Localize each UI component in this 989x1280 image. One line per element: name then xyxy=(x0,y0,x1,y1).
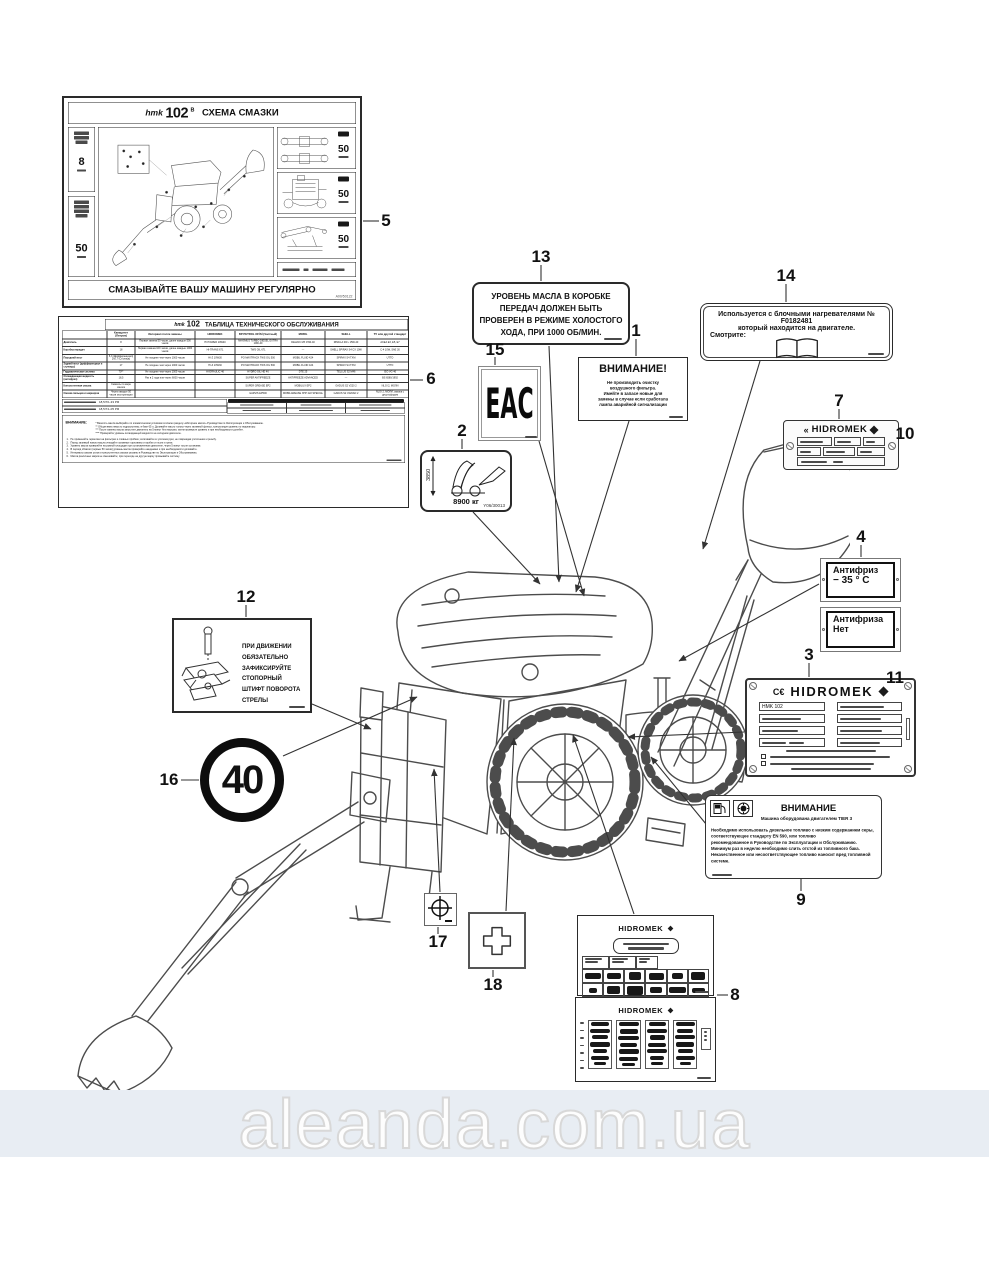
table-row: Двигатель 8 Первая замена 50 часов, дале… xyxy=(62,339,405,347)
model-number: 102 xyxy=(165,105,188,122)
maintenance-table-label: hmk 102 ТАБЛИЦА ТЕХНИЧЕСКОГО ОБСЛУЖИВАНИ… xyxy=(58,316,409,508)
model-suffix: B xyxy=(191,107,195,113)
boom-lube-panel: 50 xyxy=(277,217,356,259)
standard: NLGI 2, МОЛИ, смазка с дисульфидом xyxy=(367,390,409,398)
brand-name: HIDROMEK xyxy=(618,1006,663,1015)
manual-book-icon xyxy=(771,337,823,361)
speed-limit-sign: 40 xyxy=(200,738,284,822)
column-header: Интервал после замены xyxy=(135,331,195,339)
label-code: Y06/30013 xyxy=(483,503,505,508)
legend-strip xyxy=(277,262,356,277)
speed-value: 40 xyxy=(222,758,263,803)
engine-chart-top: HIDROMEK xyxy=(577,915,714,996)
petrol-oil: TWS OIL 671 xyxy=(235,347,281,355)
antifreeze-plate: Антифриз − 35 ° C xyxy=(820,558,901,602)
pin-warning-text: ПРИ ДВИЖЕНИИ ОБЯЗАТЕЛЬНОЗАФИКСИРУЙТЕ СТО… xyxy=(242,642,305,707)
callout-5: 5 xyxy=(381,211,390,231)
warning-subtitle: Машина оборудована двигателем TIER 3 xyxy=(736,816,877,821)
column-header xyxy=(62,331,107,339)
serial-plate-small: « HIDROMEK xyxy=(783,420,899,470)
warning-title: ВНИМАНИЕ! xyxy=(579,363,687,375)
brand-logo: hmk xyxy=(174,322,184,328)
table-row: Смазка пальцев и шарниров Через каждые 5… xyxy=(62,390,405,398)
column-header: HIDROMEK xyxy=(195,331,235,339)
note-line: Масла различных марок не смешивайте; при… xyxy=(66,455,402,458)
swing-pin-label: ПРИ ДВИЖЕНИИ ОБЯЗАТЕЛЬНОЗАФИКСИРУЙТЕ СТО… xyxy=(172,618,312,713)
callout-14: 14 xyxy=(777,266,796,286)
hidromek-logo-icon xyxy=(667,926,673,932)
mobil-oil: ANTIFREEZE ADVANCED xyxy=(281,375,325,383)
table-body: Двигатель 8 Первая замена 50 часов, дале… xyxy=(62,339,405,398)
callout-17: 17 xyxy=(429,932,448,952)
ce-mark: C€ xyxy=(773,687,785,697)
grease-interval-panel-top: 8 xyxy=(68,127,95,192)
fuel-spec: 18,5/70–33 РФ xyxy=(99,401,119,404)
interval: Не позднее чем через 1000 часов xyxy=(135,362,195,370)
table-row: Передний мост 6,3 (Дифференциал) 2x0,7 (… xyxy=(62,354,405,362)
text-line: Некачественное или несоответствующее топ… xyxy=(711,852,876,864)
callout-18: 18 xyxy=(484,975,503,995)
hidromek-oil xyxy=(195,382,235,390)
interval-hours: 8 xyxy=(71,155,93,168)
table-row: Задний мост (дифференциал и ступицы) 17 … xyxy=(62,362,405,370)
interval-hours: 50 xyxy=(332,189,356,201)
text-line: ЗАФИКСИРУЙТЕ СТОПОРНЫЙ xyxy=(242,664,305,686)
mobil-oil: — xyxy=(281,347,325,355)
table-row: Консистентная смазка Смазать по мере изн… xyxy=(62,382,405,390)
text-line: Необходимо использовать дизельное топлив… xyxy=(711,827,876,839)
chart-legend-box xyxy=(701,1028,711,1050)
gearbox-oil-label: УРОВЕНЬ МАСЛА В КОРОБКЕПЕРЕДАЧ ДОЛЖЕН БЫ… xyxy=(472,282,630,345)
table-row: Коробка передач 18 Первая замена 100 час… xyxy=(62,347,405,355)
column-header: BP PETROL OFİSİ (Частный) xyxy=(235,331,281,339)
lube-machine-panel xyxy=(98,127,274,277)
standard: C-4 10W, SAE 30 xyxy=(367,347,409,355)
stamp-area xyxy=(906,718,910,740)
lock-pin-drawing xyxy=(178,624,240,708)
callout-10: 10 xyxy=(896,424,915,444)
mobil-oil: MOBIL FLUID 424 xyxy=(281,362,325,370)
eac-mark-label: ЕАС xyxy=(478,366,541,441)
hidromek-oil: HI-TRANS 671 xyxy=(195,347,235,355)
text-line: ПРИ ДВИЖЕНИИ ОБЯЗАТЕЛЬНО xyxy=(242,642,305,664)
label-text: УРОВЕНЬ МАСЛА В КОРОБКЕПЕРЕДАЧ ДОЛЖЕН БЫ… xyxy=(474,291,628,339)
brand-name: HIDROMEK xyxy=(812,424,868,435)
transport-height: 3850 xyxy=(426,469,432,481)
chart-column xyxy=(616,1020,641,1069)
interval-hours: 50 xyxy=(332,234,356,246)
label-code: A00/50122 xyxy=(336,295,353,299)
text-line: УРОВЕНЬ МАСЛА В КОРОБКЕ xyxy=(474,291,628,303)
axle-lube-panel: 50 xyxy=(277,127,356,169)
first-aid-cross-symbol xyxy=(468,912,526,969)
chart-column xyxy=(588,1020,612,1069)
callout-9: 9 xyxy=(796,890,805,910)
capacity: 18 xyxy=(107,347,135,355)
text-line: ПЕРЕДАЧ ДОЛЖЕН БЫТЬ xyxy=(474,303,628,315)
shell-oil: SHELL SPIRAX S4 CX 10W xyxy=(325,347,367,355)
capacity: 17 xyxy=(107,362,135,370)
hidromek-oil: HI-Z 10W30 xyxy=(195,362,235,370)
row-label: Охлаждающая жидкость (антифриз) xyxy=(62,375,107,383)
star-notes: * Вязкость масла выбирайте по климатичес… xyxy=(96,422,402,436)
interval xyxy=(135,390,195,398)
callout-11: 11 xyxy=(886,668,904,688)
capacity: Смазать по мере износа xyxy=(107,382,135,390)
transport-label: 3850 8900 кг Y06/30013 xyxy=(420,450,512,512)
chart-column xyxy=(645,1020,669,1069)
heater-line2: который находится на двигателе. xyxy=(710,325,883,332)
numbered-notes: Не применяйте герметики на фильтрах и сл… xyxy=(66,438,402,458)
checkbox xyxy=(761,761,766,766)
row-label: Коробка передач xyxy=(62,347,107,355)
capacity: 6,3 (Дифференциал) 2x0,7 (Ступица) xyxy=(107,354,135,362)
hidromek-oil: HI-Z 10W30 xyxy=(195,354,235,362)
shell-oil: GADUS S2 V220 2 xyxy=(325,382,367,390)
row-label: Смазка пальцев и шарниров xyxy=(62,390,107,398)
row-label: Задний мост (дифференциал и ступицы) xyxy=(62,362,107,370)
engine-chart-bottom: HIDROMEK xyxy=(575,997,716,1082)
watermark-band: aleanda.com.ua xyxy=(0,1090,989,1157)
callout-1: 1 xyxy=(631,321,640,341)
warning-title: ВНИМАНИЕ xyxy=(736,803,881,814)
hidromek-logo-icon xyxy=(667,1008,673,1014)
lubrication-chart-label: hmk 102 B СХЕМА СМАЗКИ 8 50 xyxy=(62,96,362,308)
chart-title-pill xyxy=(613,938,679,954)
column-header: Капацитет (Литров) xyxy=(107,331,135,339)
table-title: ТАБЛИЦА ТЕХНИЧЕСКОГО ОБСЛУЖИВАНИЯ xyxy=(205,321,339,328)
notes-title: ВНИМАНИЕ: xyxy=(66,421,88,425)
air-filter-warning-label: ВНИМАНИЕ! Не производить очисткувоздушно… xyxy=(578,357,688,421)
capacity: Через каждые 50 часов эксплуатации xyxy=(107,390,135,398)
brand-name: HIDROMEK xyxy=(790,684,873,699)
capacity: 8 xyxy=(107,339,135,347)
hidromek-oil xyxy=(195,375,235,383)
callout-15: 15 xyxy=(486,340,505,360)
mobil-oil: MOBILGREASE XHP 222 SPECIAL xyxy=(281,390,325,398)
shell-oil: RIMULA R4 L 15W-40 xyxy=(325,339,367,347)
mobil-oil: MOBILUX EP2 xyxy=(281,382,325,390)
callout-16: 16 xyxy=(160,770,179,790)
fuel-spec: 18,5/74–05 РФ xyxy=(99,408,119,411)
antifreeze-label: Антифриза xyxy=(833,614,888,624)
model-number: 102 xyxy=(187,320,200,329)
antifreeze-value: Нет xyxy=(833,624,888,634)
petrol-oil: PO MAXTRACK TWS OIL 500 xyxy=(235,362,281,370)
heater-line1: Используется с блочными нагревателями № … xyxy=(710,311,883,325)
mobil-oil: DELVAC MX 15W-40 xyxy=(281,339,325,347)
callout-6: 6 xyxy=(426,369,435,389)
interval: Раз в 2 года или через 6000 часов xyxy=(135,375,195,383)
brand-logo: hmk xyxy=(145,108,162,118)
text-line: ШТИФТ ПОВОРОТА СТРЕЛЫ xyxy=(242,685,305,707)
callout-3: 3 xyxy=(804,645,813,665)
text-line: ПРОВЕРЕН В РЕЖИМЕ ХОЛОСТОГО xyxy=(474,315,628,327)
column-header: ТУ или другой стандарт xyxy=(367,331,409,339)
column-header: MOBIL xyxy=(281,331,325,339)
grease-interval-panel-bottom: 50 xyxy=(68,196,95,277)
callout-4: 4 xyxy=(856,527,865,547)
shell-oil: — xyxy=(325,375,367,383)
row-label: Двигатель xyxy=(62,339,107,347)
interval xyxy=(135,382,195,390)
lube-footer: СМАЗЫВАЙТЕ ВАШУ МАШИНУ РЕГУЛЯРНО xyxy=(108,285,315,296)
standard: NLGI 2, МОЛИ xyxy=(367,382,409,390)
petrol-oil: SUPER ANTIFREEZE xyxy=(235,375,281,383)
ce-chevrons: « xyxy=(804,425,809,435)
interval: Первая замена 100 часов, далее каждые 10… xyxy=(135,347,195,355)
watermark-text: aleanda.com.ua xyxy=(238,1084,750,1164)
callout-12: 12 xyxy=(237,587,256,607)
note-line: **** Проверяйте уровень охлаждающей жидк… xyxy=(96,432,402,435)
interval-hours: 50 xyxy=(332,144,356,156)
block-heater-label: Используется с блочными нагревателями № … xyxy=(700,303,893,361)
interval-hours: 50 xyxy=(71,242,93,255)
petrol-oil: MAXIMUS TURBO DIESEL EXTRA 10W-40 xyxy=(235,339,281,347)
callout-8: 8 xyxy=(730,985,739,1005)
standard: ACEA E3, E5, E7 xyxy=(367,339,409,347)
table-header-row: Капацитет (Литров)Интервал после заменыH… xyxy=(62,331,405,339)
callout-7: 7 xyxy=(834,391,843,411)
lube-title: СХЕМА СМАЗКИ xyxy=(202,108,279,119)
interval: Не позднее чем через 1000 часов xyxy=(135,354,195,362)
table-row: Охлаждающая жидкость (антифриз) 18,5 Раз… xyxy=(62,375,405,383)
text-line: лампа аварийной сигнализации xyxy=(583,402,683,408)
engine-lube-panel: 50 xyxy=(277,172,356,214)
standard: UTTO xyxy=(367,354,409,362)
shell-oil: SPIRAX S4 TXM xyxy=(325,362,367,370)
antifreeze-temp: − 35 ° C xyxy=(833,575,888,586)
petrol-oil: PO MAXTRACK TWS OIL 500 xyxy=(235,354,281,362)
machine-data-plate: C€ HIDROMEK HMK 102 xyxy=(745,678,916,777)
callout-13: 13 xyxy=(532,247,551,267)
capacity: 18,5 xyxy=(107,375,135,383)
mobil-oil: MOBIL FLUID 424 xyxy=(281,354,325,362)
no-antifreeze-plate: Антифриза Нет xyxy=(820,607,901,652)
engine-icon xyxy=(733,800,753,817)
petrol-oil: GARVIS EP500 xyxy=(235,390,281,398)
antifreeze-type: Антифриз xyxy=(833,565,888,575)
lift-point-symbol xyxy=(424,893,457,926)
brand-name: HIDROMEK xyxy=(618,924,663,933)
standard: UTTO xyxy=(367,362,409,370)
row-label: Консистентная смазка xyxy=(62,382,107,390)
shell-oil: SPIRAX S4 TXM xyxy=(325,354,367,362)
standard: BS 6580/1992 xyxy=(367,375,409,383)
fuel-pump-icon xyxy=(710,800,730,817)
shell-oil: GADUS S2 V220AD 2 xyxy=(325,390,367,398)
petrol-oil: SUPER GREASE EP2 xyxy=(235,382,281,390)
column-header: SHELL xyxy=(325,331,367,339)
checkbox xyxy=(761,754,766,759)
model-field: HMK 102 xyxy=(759,702,825,711)
eac-letters: ЕАС xyxy=(485,379,533,428)
hidromek-logo-icon xyxy=(870,425,879,434)
interval: Первая замена 50 часов, далее каждые 500… xyxy=(135,339,195,347)
row-label: Передний мост xyxy=(62,354,107,362)
notes-box: ВНИМАНИЕ: * Вязкость масла выбирайте по … xyxy=(62,415,405,463)
tier-fuel-warning-label: ВНИМАНИЕ Машина оборудована двигателем T… xyxy=(705,795,882,879)
chart-column xyxy=(673,1020,697,1069)
hidromek-oil xyxy=(195,390,235,398)
hidromek-oil: HI POWER 10W40 xyxy=(195,339,235,347)
callout-2: 2 xyxy=(457,421,466,441)
